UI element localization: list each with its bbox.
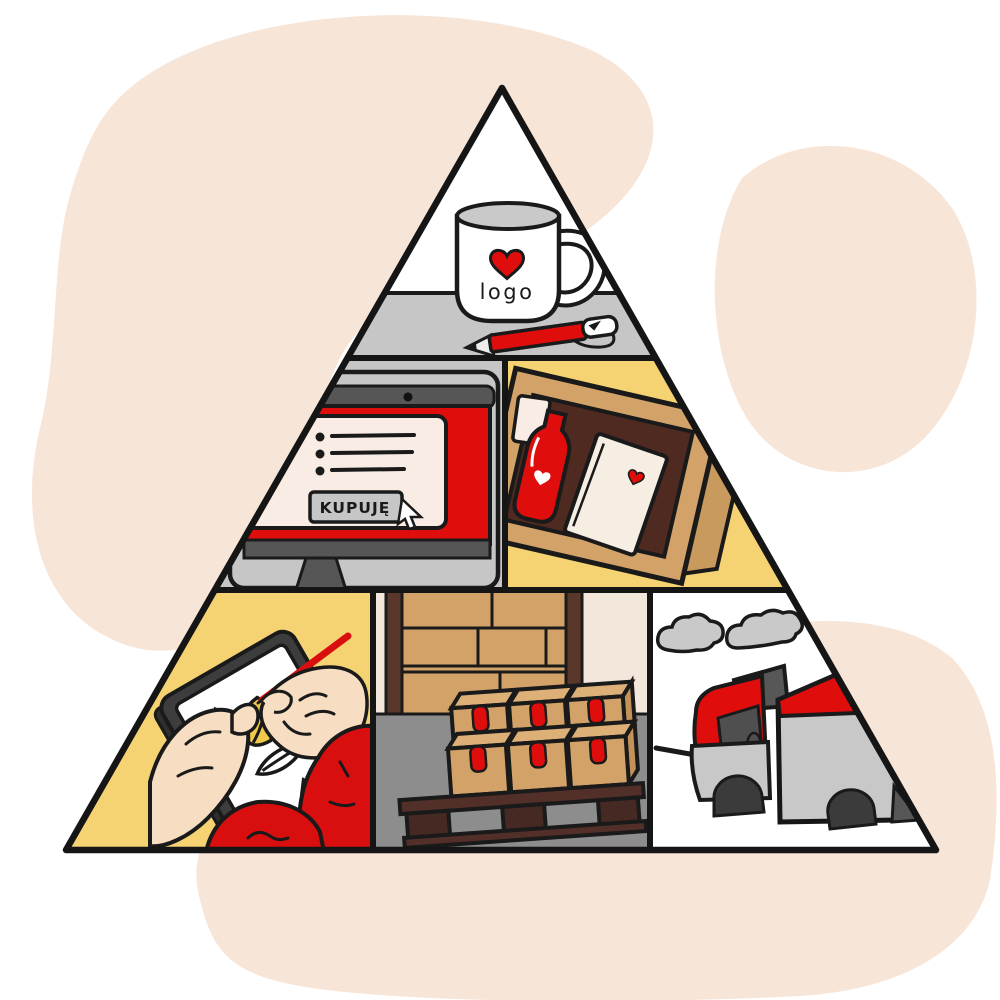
pen-cap [582, 316, 618, 339]
monitor-stand [296, 558, 346, 590]
mug-logo-label: logo [480, 280, 535, 304]
bullet-line [332, 469, 404, 470]
bullet-line [332, 452, 412, 453]
illustration-canvas: logo [0, 0, 1000, 1000]
bullet-dot [316, 433, 325, 442]
background-blob [715, 146, 977, 472]
front-wheel [714, 776, 764, 816]
webcam-icon [404, 393, 413, 402]
left-thumb [232, 704, 258, 734]
bullet-dot [316, 467, 325, 476]
mug-opening [457, 203, 559, 229]
tape-strip [588, 698, 605, 724]
buy-button: KUPUJĘ [310, 492, 402, 522]
monitor-bottom-bezel [244, 540, 490, 558]
bullet-dot [316, 450, 325, 459]
buy-button-label: KUPUJĘ [320, 499, 391, 517]
rear-wheel [828, 790, 876, 829]
section-warehouse [373, 588, 650, 852]
tape-strip [530, 742, 547, 768]
tape-strip [590, 738, 607, 764]
tape-strip [472, 706, 489, 732]
pyramid-illustration: logo [0, 0, 1000, 1000]
bullet-line [332, 435, 414, 436]
tape-strip [530, 702, 547, 728]
shelf-post [386, 588, 402, 718]
tape-strip [470, 746, 487, 772]
